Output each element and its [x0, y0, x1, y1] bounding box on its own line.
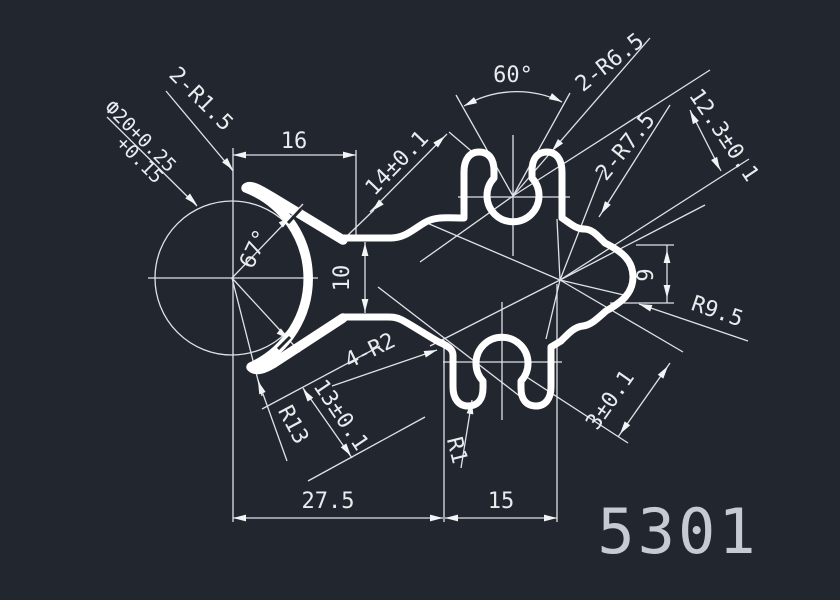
cad-drawing-canvas: 16 14±0.1 60° 2-R6.5 2-R7.5 12.3±0.1 Ф20… — [0, 0, 840, 600]
dim-10-label: 10 — [330, 265, 355, 292]
dim-27-5-label: 27.5 — [302, 489, 355, 514]
angle-60-label: 60° — [493, 63, 533, 88]
dim-15-label: 15 — [488, 489, 515, 514]
dim-16-label: 16 — [281, 129, 308, 154]
dim-9-label: 9 — [634, 268, 659, 281]
part-number: 5301 — [597, 495, 758, 568]
